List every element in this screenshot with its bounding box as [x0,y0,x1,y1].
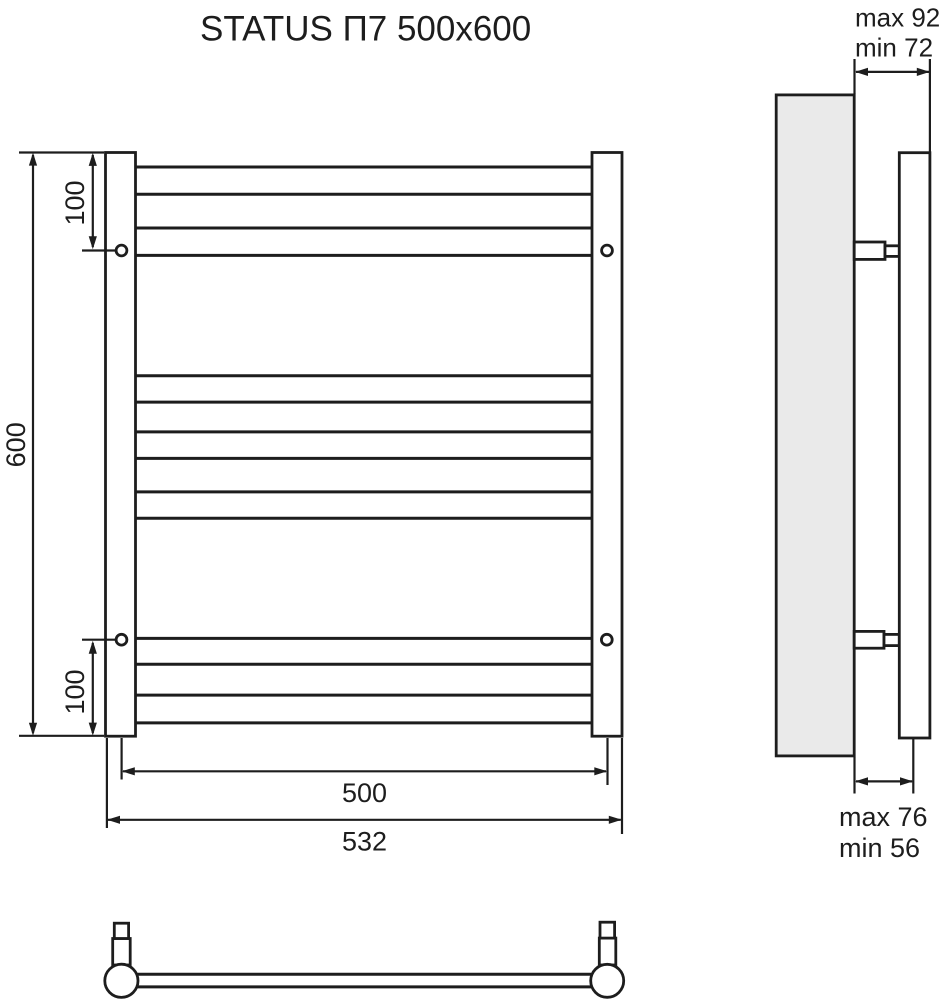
svg-text:600: 600 [1,422,31,467]
svg-text:min 72: min 72 [855,33,933,63]
svg-text:max 76: max 76 [839,802,928,832]
svg-text:min 56: min 56 [839,833,920,863]
svg-text:100: 100 [60,669,90,714]
svg-text:500: 500 [342,778,387,808]
svg-text:100: 100 [60,180,90,225]
svg-text:STATUS П7 500x600: STATUS П7 500x600 [200,10,531,49]
svg-text:max 92: max 92 [855,2,940,32]
svg-text:532: 532 [342,826,387,856]
